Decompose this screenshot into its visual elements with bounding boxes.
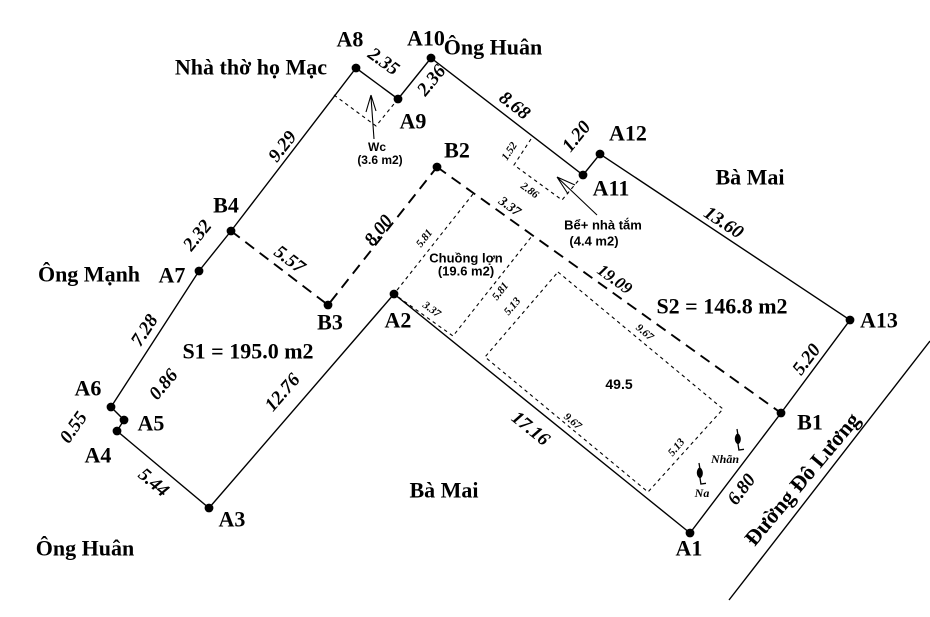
svg-text:Nhãn: Nhãn [710,452,739,466]
svg-text:(3.6 m2): (3.6 m2) [357,153,402,167]
svg-text:Nhà thờ họ Mạc: Nhà thờ họ Mạc [175,54,327,79]
svg-text:(4.4 m2): (4.4 m2) [569,233,618,248]
svg-text:Wc: Wc [368,140,386,154]
svg-text:A11: A11 [593,175,630,200]
svg-text:Na: Na [694,486,710,500]
svg-text:A1: A1 [676,535,703,560]
svg-text:A2: A2 [385,307,412,332]
svg-text:S2 = 146.8 m2: S2 = 146.8 m2 [656,293,787,318]
svg-text:Bà Mai: Bà Mai [409,477,478,502]
svg-text:Ông Mạnh: Ông Mạnh [38,261,140,286]
svg-text:Bà Mai: Bà Mai [715,164,784,189]
svg-text:A3: A3 [219,506,246,531]
svg-text:Ông Huân: Ông Huân [36,535,134,560]
svg-text:A5: A5 [138,410,165,435]
svg-text:A9: A9 [400,108,427,133]
svg-text:A10: A10 [407,25,445,50]
svg-text:S1 = 195.0 m2: S1 = 195.0 m2 [182,338,313,363]
svg-text:A13: A13 [860,307,898,332]
svg-text:B1: B1 [797,409,823,434]
svg-text:A7: A7 [159,262,186,287]
svg-text:Ông Huân: Ông Huân [444,34,542,59]
svg-text:A6: A6 [75,375,102,400]
svg-text:B2: B2 [444,137,470,162]
svg-text:A12: A12 [609,120,647,145]
svg-text:(19.6 m2): (19.6 m2) [438,263,494,278]
svg-text:B3: B3 [317,309,343,334]
svg-text:49.5: 49.5 [605,376,632,392]
svg-text:A8: A8 [337,26,364,51]
svg-text:Bể+ nhà tắm: Bể+ nhà tắm [564,217,642,232]
svg-text:A4: A4 [85,442,112,467]
svg-text:B4: B4 [213,192,239,217]
